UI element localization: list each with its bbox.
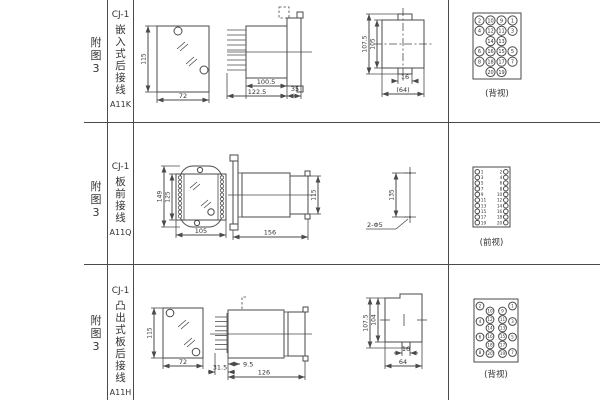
svg-text:11: 11 <box>498 29 504 35</box>
dim-front-height-inner: 125 <box>165 191 172 203</box>
svg-text:2: 2 <box>478 18 481 24</box>
dim-rear-width-outer: 64 <box>399 358 407 366</box>
dim-offset: 9.5 <box>243 361 253 369</box>
terminal-pin: 1 <box>509 302 517 310</box>
terminal-pin: 1 <box>508 16 517 25</box>
terminal-number: 1 <box>481 169 484 175</box>
dim-total-length: 122.5 <box>248 88 267 96</box>
svg-text:16: 16 <box>487 334 493 339</box>
svg-text:12: 12 <box>487 317 493 322</box>
terminal-pin <box>475 192 480 197</box>
row2-front-view: 149 125 105 <box>157 166 227 238</box>
terminal-pin <box>220 193 223 196</box>
svg-text:10: 10 <box>487 309 493 314</box>
terminal-number: 13 <box>481 203 487 209</box>
terminal-pin: 13 <box>497 37 506 46</box>
view-caption: (背视) <box>484 369 508 380</box>
terminal-pin <box>220 184 223 187</box>
svg-text:19: 19 <box>498 70 504 76</box>
terminal-pin <box>504 175 509 180</box>
terminal-pin: 4 <box>475 26 484 35</box>
svg-text:14: 14 <box>487 326 493 331</box>
dim-body-height: 115 <box>311 189 318 201</box>
terminal-pin <box>475 203 480 208</box>
terminal-pin <box>504 186 509 191</box>
front-plate <box>233 161 238 224</box>
terminal-pin: 9 <box>497 16 506 25</box>
terminal-pin <box>475 170 480 175</box>
terminal-pin <box>220 180 223 183</box>
row3-side-view: 31.5 9.5 126 <box>208 297 312 380</box>
terminal-pin <box>504 215 509 220</box>
terminal-pin: 6 <box>475 47 484 56</box>
terminal-number: 11 <box>481 198 487 204</box>
dim-rear-height-inner: 104 <box>371 314 378 326</box>
svg-text:4: 4 <box>479 319 482 324</box>
terminal-number: 6 <box>500 181 503 187</box>
terminal-pin-list: 1357911131517192468101214161820 <box>475 169 508 226</box>
terminal-pin: 8 <box>475 57 484 66</box>
terminal-pin <box>220 189 223 192</box>
hook-symbol <box>242 297 248 309</box>
svg-text:9: 9 <box>500 18 503 24</box>
rear-outline <box>385 294 422 342</box>
terminal-pin <box>475 209 480 214</box>
mounting-hole <box>174 27 182 35</box>
terminal-pin: 11 <box>497 26 506 35</box>
terminal-pin <box>475 198 480 203</box>
svg-text:12: 12 <box>487 29 493 35</box>
svg-text:20: 20 <box>487 70 493 76</box>
terminal-pin: 14 <box>486 37 495 46</box>
terminal-pin: 4 <box>476 318 484 326</box>
terminal-pin: 20 <box>486 67 495 76</box>
terminal-number: 5 <box>481 181 484 187</box>
svg-text:4: 4 <box>478 29 481 35</box>
mounting-hole <box>197 167 202 172</box>
svg-text:7: 7 <box>511 60 514 66</box>
terminal-pin: 11 <box>499 316 507 324</box>
terminal-pin: 7 <box>508 57 517 66</box>
svg-text:13: 13 <box>500 326 506 331</box>
terminal-number: 3 <box>481 175 484 181</box>
terminal-pin <box>475 220 480 225</box>
terminal-pin <box>504 209 509 214</box>
terminal-number: 12 <box>497 198 503 204</box>
terminal-number: 14 <box>497 203 503 209</box>
dim-total-length: 126 <box>258 369 270 377</box>
svg-text:14: 14 <box>487 39 493 45</box>
terminal-pin-grid: 2468101214161820911131517191357 <box>476 302 516 357</box>
terminal-number: 10 <box>497 192 503 198</box>
terminal-pin: 20 <box>486 350 494 358</box>
mounting-hole <box>200 66 208 74</box>
svg-text:6: 6 <box>478 49 481 55</box>
svg-text:6: 6 <box>479 335 482 340</box>
center-marks <box>380 314 427 326</box>
svg-text:11: 11 <box>500 317 506 322</box>
terminal-pin <box>220 176 223 179</box>
row1-terminal-back-view: 2109141211314136161558181772019 (背视) <box>473 13 521 99</box>
terminal-number: 19 <box>481 220 487 226</box>
terminal-pin: 5 <box>509 333 517 341</box>
terminal-pin <box>504 198 509 203</box>
svg-text:1: 1 <box>511 304 514 309</box>
terminal-pin <box>178 193 181 196</box>
terminal-pin <box>504 192 509 197</box>
svg-text:2: 2 <box>479 304 482 309</box>
view-caption: (前视) <box>480 237 504 248</box>
terminal-pin: 12 <box>486 316 494 324</box>
svg-text:20: 20 <box>487 351 493 356</box>
hole-note-label: 2-Φ5 <box>367 221 383 229</box>
terminal-pin <box>504 181 509 186</box>
terminal-number: 2 <box>500 169 503 175</box>
terminal-pin: 7 <box>509 349 517 357</box>
terminal-pin: 12 <box>486 26 495 35</box>
terminal-pin <box>475 175 480 180</box>
screw-head <box>208 209 214 215</box>
terminal-strip-dots <box>178 176 223 218</box>
row1-panel-cutout-view: 115 72 <box>141 26 210 103</box>
row1-side-view: 100.5 122.5 35 <box>227 7 312 99</box>
terminal-pin <box>475 186 480 191</box>
terminal-number: 20 <box>497 220 503 226</box>
dim-front-height-outer: 149 <box>157 191 164 203</box>
terminal-number: 17 <box>481 215 487 221</box>
row2-drilling-plan: 135 2-Φ5 <box>366 167 416 229</box>
terminal-pin: 2 <box>475 16 484 25</box>
svg-text:18: 18 <box>487 343 493 348</box>
terminal-comb <box>215 313 227 353</box>
svg-text:15: 15 <box>500 334 506 339</box>
svg-text:17: 17 <box>500 343 506 348</box>
view-caption: (背视) <box>485 88 509 99</box>
svg-text:15: 15 <box>498 49 504 55</box>
dim-hole-pitch: 135 <box>389 189 396 201</box>
terminal-pin <box>178 206 181 209</box>
terminal-pin <box>178 197 181 200</box>
dim-flange-depth: 35 <box>291 85 299 93</box>
terminal-pin <box>178 215 181 218</box>
screw-marks <box>190 182 211 208</box>
terminal-pin: 17 <box>499 341 507 349</box>
terminal-pin: 17 <box>497 57 506 66</box>
terminal-pin <box>220 210 223 213</box>
svg-text:3: 3 <box>511 29 514 35</box>
dim-rear-height-outer: 107.5 <box>362 35 369 52</box>
terminal-pin <box>178 180 181 183</box>
svg-text:8: 8 <box>479 350 482 355</box>
terminal-pin <box>220 206 223 209</box>
terminal-number: 7 <box>481 186 484 192</box>
svg-text:9: 9 <box>501 309 504 314</box>
svg-text:18: 18 <box>487 60 493 66</box>
terminal-pin: 6 <box>476 333 484 341</box>
row2-side-view: 156 115 <box>228 155 321 240</box>
screw-marks <box>177 42 197 66</box>
svg-text:17: 17 <box>498 60 504 66</box>
terminal-pin: 13 <box>499 324 507 332</box>
terminal-pin <box>504 170 509 175</box>
terminal-number: 15 <box>481 209 487 215</box>
dim-rear-height-inner: 105 <box>370 38 377 50</box>
dim-rear-height-outer: 107.5 <box>363 314 370 331</box>
terminal-number: 8 <box>500 186 503 192</box>
terminal-pin <box>475 215 480 220</box>
terminal-number: 4 <box>500 175 503 181</box>
terminal-pin-grid: 2109141211314136161558181772019 <box>475 16 517 77</box>
mounting-hole <box>194 220 199 225</box>
svg-text:16: 16 <box>487 49 493 55</box>
row3-rear-view: 107.5 104 16 64 <box>363 294 428 369</box>
terminal-pin <box>220 197 223 200</box>
svg-text:5: 5 <box>511 335 514 340</box>
screw-marks <box>178 320 195 347</box>
svg-text:8: 8 <box>478 60 481 66</box>
row3-terminal-back-view: 2468101214161820911131517191357 (背视) <box>474 299 518 380</box>
terminal-number: 16 <box>497 209 503 215</box>
front-outline <box>163 308 203 358</box>
dim-front-height: 115 <box>147 327 154 339</box>
terminal-pin: 10 <box>486 16 495 25</box>
terminal-pin: 19 <box>499 350 507 358</box>
dim-terminal-length: 31.5 <box>213 364 227 372</box>
svg-text:13: 13 <box>498 39 504 45</box>
dim-body-length: 100.5 <box>257 78 276 86</box>
relay-dimension-drawing-sheet: 附 图 3 CJ-1 嵌 入 式 后 接 线 A11K 附 图 3 CJ-1 板… <box>0 0 600 400</box>
terminal-pin <box>178 176 181 179</box>
terminal-number: 9 <box>481 192 484 198</box>
terminal-pin: 15 <box>497 47 506 56</box>
terminal-pin: 9 <box>499 307 507 315</box>
dim-rear-width-inner: 16 <box>402 345 410 353</box>
terminal-pin <box>178 210 181 213</box>
terminal-plate <box>176 174 226 220</box>
terminal-pin <box>220 215 223 218</box>
svg-text:10: 10 <box>487 18 493 24</box>
row3-front-view: 115 72 <box>147 308 204 369</box>
terminal-pin: 3 <box>509 318 517 326</box>
terminal-pin: 10 <box>486 307 494 315</box>
terminal-pin <box>475 181 480 186</box>
terminal-pin <box>178 184 181 187</box>
terminal-pin: 18 <box>486 341 494 349</box>
terminal-pin <box>504 220 509 225</box>
dim-front-width: 105 <box>195 227 207 235</box>
terminal-pin: 14 <box>486 324 494 332</box>
svg-text:19: 19 <box>500 351 506 356</box>
dim-rear-width-outer: (64) <box>396 86 409 94</box>
terminal-pin: 15 <box>499 333 507 341</box>
dim-rear-width-inner: 16 <box>401 73 409 81</box>
svg-text:3: 3 <box>511 319 514 324</box>
mounting-hole <box>166 309 174 317</box>
svg-text:7: 7 <box>511 350 514 355</box>
terminal-pin: 19 <box>497 67 506 76</box>
dim-front-width: 72 <box>179 358 187 366</box>
terminal-pin <box>178 202 181 205</box>
terminal-pin <box>178 189 181 192</box>
dim-front-height: 115 <box>141 53 148 65</box>
svg-text:5: 5 <box>511 49 514 55</box>
hidden-stud <box>279 7 289 18</box>
terminal-pin: 16 <box>486 333 494 341</box>
terminal-pin: 8 <box>476 349 484 357</box>
terminal-pin: 3 <box>508 26 517 35</box>
terminal-pin: 18 <box>486 57 495 66</box>
dim-front-width: 72 <box>179 92 187 100</box>
svg-text:1: 1 <box>511 18 514 24</box>
panel-cutout-outline <box>157 26 209 92</box>
terminal-pin <box>220 202 223 205</box>
row1-rear-view: 107.5 105 16 (64) <box>362 8 433 97</box>
terminal-number: 18 <box>497 215 503 221</box>
mounting-hole <box>192 348 200 356</box>
terminal-pin: 2 <box>476 302 484 310</box>
engineering-drawings: 115 72 100.5 122.5 35 <box>0 0 600 400</box>
terminal-comb <box>227 30 246 70</box>
flange-outline <box>180 166 222 227</box>
terminal-pin: 16 <box>486 47 495 56</box>
row2-terminal-front-view: 1357911131517192468101214161820 (前视) <box>473 167 510 248</box>
terminal-pin <box>504 203 509 208</box>
dim-total-length: 156 <box>264 229 276 237</box>
terminal-pin: 5 <box>508 47 517 56</box>
